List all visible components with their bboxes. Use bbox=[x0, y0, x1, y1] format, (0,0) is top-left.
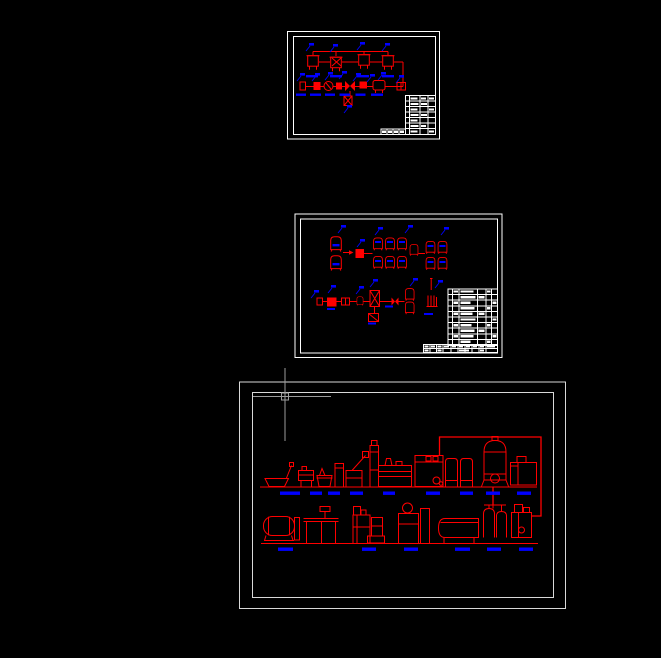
cad-viewport[interactable] bbox=[0, 0, 661, 658]
title-strip bbox=[424, 345, 498, 353]
crosshair-cursor bbox=[253, 368, 331, 441]
equipment-table bbox=[448, 289, 498, 346]
sheet-elevation-layout[interactable] bbox=[240, 382, 566, 609]
elevation-lower-row bbox=[261, 503, 538, 544]
process-line-lower bbox=[311, 278, 443, 325]
sheet-equipment-schematic[interactable] bbox=[295, 214, 502, 358]
flow-equipment bbox=[300, 52, 406, 106]
sheet-flow-diagram[interactable] bbox=[288, 32, 440, 140]
drawing-canvas[interactable] bbox=[0, 0, 661, 658]
elevation-upper-row bbox=[260, 437, 541, 517]
sheet-frame bbox=[240, 382, 566, 609]
elevation-upper-hatch bbox=[280, 492, 531, 495]
title-block bbox=[381, 96, 436, 135]
process-line-upper bbox=[331, 225, 449, 271]
elevation-lower-hatch bbox=[278, 548, 533, 551]
